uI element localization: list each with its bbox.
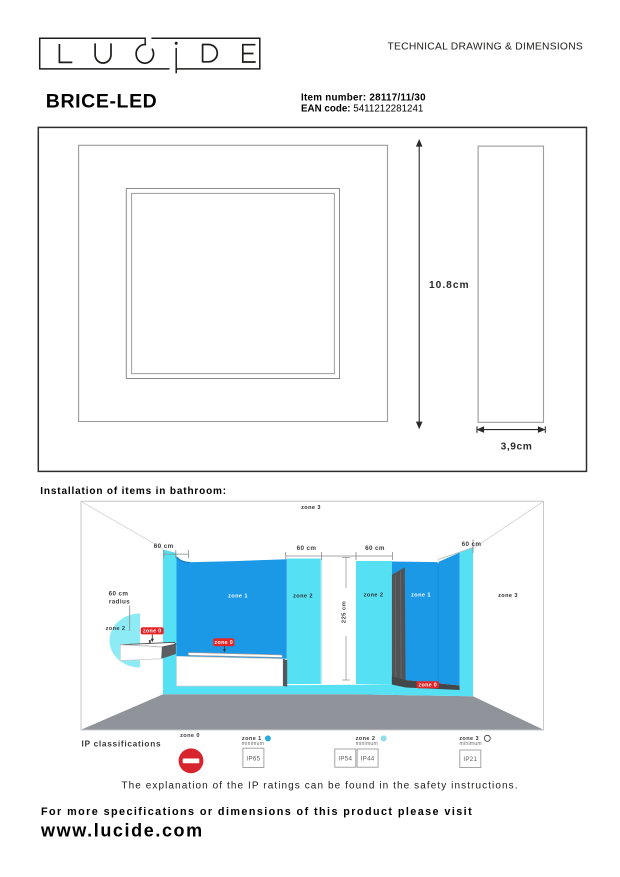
svg-text:TECHNICAL DRAWING & DIMENSIONS: TECHNICAL DRAWING & DIMENSIONS xyxy=(387,41,583,52)
svg-text:225 cm: 225 cm xyxy=(342,601,348,623)
svg-text:60 cm: 60 cm xyxy=(109,591,129,598)
svg-text:10.8cm: 10.8cm xyxy=(429,280,470,291)
svg-text:The explanation of the IP rati: The explanation of the IP ratings can be… xyxy=(121,780,518,791)
svg-text:EAN code: 5411212281241: EAN code: 5411212281241 xyxy=(301,104,423,115)
svg-text:zone 2: zone 2 xyxy=(293,593,313,599)
svg-text:3,9cm: 3,9cm xyxy=(501,441,533,452)
svg-text:60 cm: 60 cm xyxy=(154,543,174,550)
svg-text:IP21: IP21 xyxy=(463,756,477,763)
svg-text:www.lucide.com: www.lucide.com xyxy=(40,821,204,841)
svg-text:minimum: minimum xyxy=(242,741,264,747)
svg-text:Installation of items in bathr: Installation of items in bathroom: xyxy=(40,486,227,497)
svg-text:60 cm: 60 cm xyxy=(365,545,385,552)
svg-text:radius: radius xyxy=(109,598,130,605)
svg-text:zone 0: zone 0 xyxy=(143,629,162,635)
svg-text:zone 1: zone 1 xyxy=(411,592,431,598)
svg-text:IP65: IP65 xyxy=(246,755,260,762)
svg-text:minimum: minimum xyxy=(460,741,482,747)
svg-text:zone 1: zone 1 xyxy=(228,593,248,599)
svg-text:Item number: 28117/11/30: Item number: 28117/11/30 xyxy=(301,92,426,103)
svg-text:IP classifications: IP classifications xyxy=(82,739,162,749)
svg-text:For more specifications or dim: For more specifications or dimensions of… xyxy=(41,806,473,818)
svg-text:minimum: minimum xyxy=(356,741,378,747)
svg-text:zone 0: zone 0 xyxy=(419,683,438,689)
svg-text:IP54: IP54 xyxy=(338,756,352,763)
svg-text:60 cm: 60 cm xyxy=(462,541,482,548)
svg-text:BRICE-LED: BRICE-LED xyxy=(46,91,158,113)
svg-text:zone 2: zone 2 xyxy=(364,592,384,598)
svg-text:IP44: IP44 xyxy=(361,756,375,763)
svg-text:zone 3: zone 3 xyxy=(498,593,518,599)
svg-text:zone 0: zone 0 xyxy=(215,640,234,646)
svg-text:60 cm: 60 cm xyxy=(297,545,317,552)
svg-text:zone 0: zone 0 xyxy=(180,733,200,739)
svg-text:zone 3: zone 3 xyxy=(301,505,321,511)
svg-text:zone 2: zone 2 xyxy=(106,626,126,632)
